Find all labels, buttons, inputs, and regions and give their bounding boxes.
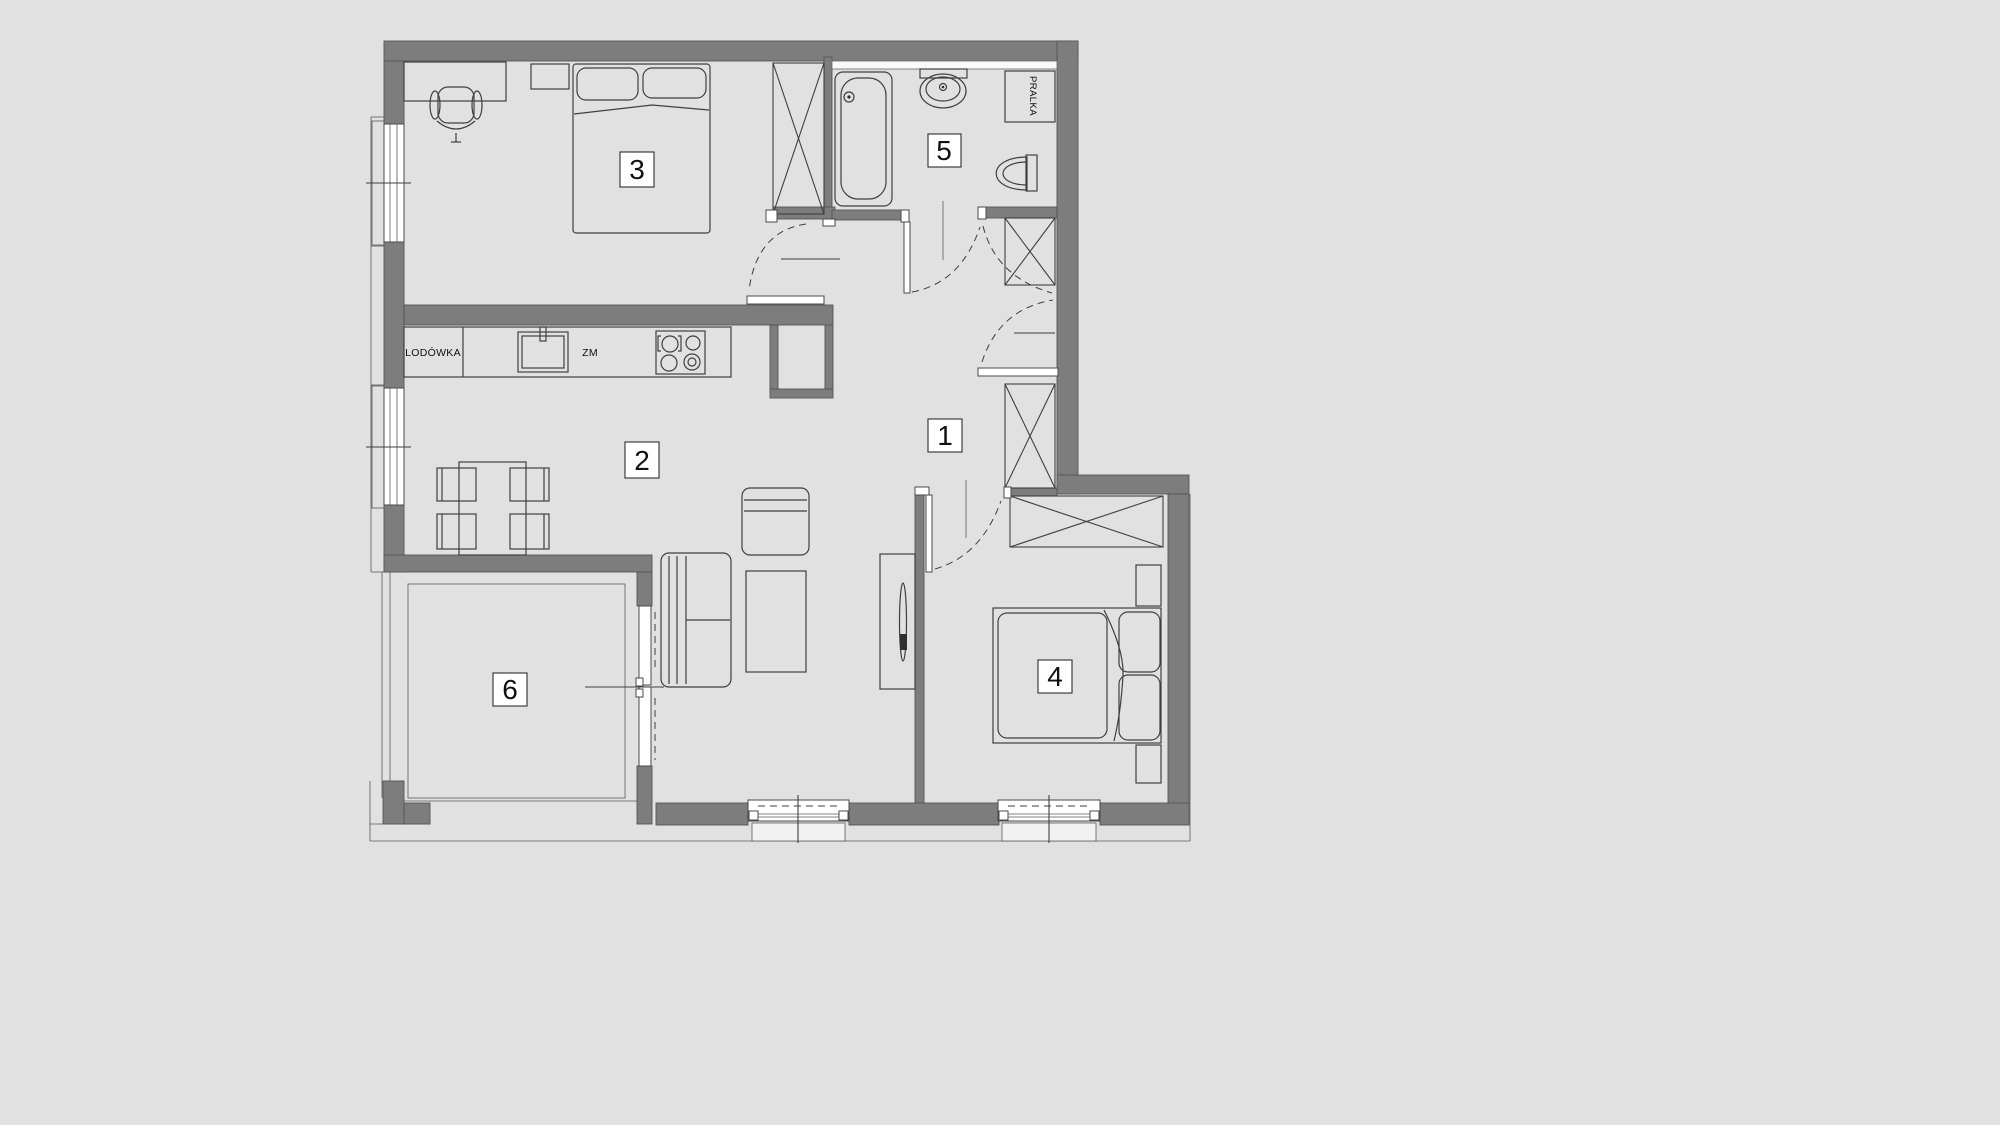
wall-room4-top (1057, 475, 1189, 494)
bathroom-top-strip (832, 61, 1057, 69)
wall-bottom-3 (1100, 803, 1189, 825)
bed-room3 (573, 64, 710, 233)
closet-hall-upper (1005, 218, 1055, 285)
floorplan-drawing: LODÓWKA ZM (0, 0, 2000, 1125)
window-left-upper (366, 121, 411, 245)
dining-set (437, 462, 549, 555)
wall-bottom-1 (656, 803, 748, 825)
wall-bath-bottom-right (980, 207, 1057, 218)
room-number: 6 (502, 674, 518, 705)
wall-closet-bottom (1004, 488, 1057, 496)
coffee-table (746, 571, 806, 672)
door-loggia (585, 606, 664, 766)
balcony-door-room4 (998, 795, 1100, 843)
bathroom-sink (920, 69, 967, 108)
room-label-1: 1 (928, 419, 962, 452)
wardrobe-room4 (1010, 496, 1163, 547)
sink-label: ZM (582, 347, 598, 359)
room-number: 2 (634, 445, 650, 476)
bed-room4 (993, 608, 1161, 743)
desk-room3 (404, 62, 506, 101)
room-number: 1 (937, 420, 953, 451)
door-room3 (749, 210, 840, 290)
wall-bath-left (824, 57, 832, 219)
washing-machine: PRALKA (1005, 71, 1055, 122)
armchair (742, 488, 809, 555)
wall-bottom-2 (849, 803, 999, 825)
room-label-5: 5 (928, 134, 961, 167)
floorplan-canvas: LODÓWKA ZM (0, 0, 2000, 1125)
window-left-lower (366, 385, 411, 508)
bathtub (835, 72, 892, 206)
room-number: 4 (1047, 661, 1063, 692)
wall-room6-right-lower (637, 766, 652, 824)
shaft-right (825, 325, 833, 389)
walls (383, 41, 1189, 825)
wall-bath-bottom-left (832, 210, 906, 220)
room-label-4: 4 (1038, 660, 1072, 693)
opening-hall-living (747, 296, 824, 304)
toilet (996, 155, 1037, 191)
wall-block-bl-1 (383, 781, 404, 824)
wardrobe-room3 (773, 63, 824, 214)
stove (656, 331, 705, 374)
tv-cabinet (880, 554, 915, 689)
wall-left-upper (384, 61, 404, 124)
wall-stub-room3 (773, 207, 835, 219)
wall-right-inner (1057, 41, 1078, 494)
nightstand-room4-top (1136, 565, 1161, 606)
wall-top (384, 41, 1078, 61)
room-number: 5 (936, 135, 952, 166)
kitchen-sink (518, 327, 568, 372)
door-room4 (915, 480, 1011, 572)
room-label-6: 6 (493, 673, 527, 706)
tv-icon (900, 634, 907, 650)
wall-room6-top (384, 555, 652, 572)
washer-label: PRALKA (1027, 76, 1038, 116)
wall-right-outer (1168, 494, 1189, 824)
shaft-left (770, 325, 778, 389)
room-number: 3 (629, 154, 645, 185)
wall-room6-right-upper (637, 572, 652, 606)
nightstand-room4-bottom (1136, 745, 1161, 783)
wall-living-room4 (915, 487, 924, 803)
room-label-3: 3 (620, 152, 654, 187)
nightstand-room3 (531, 64, 569, 89)
fridge-label: LODÓWKA (405, 346, 461, 359)
office-chair (430, 87, 482, 142)
sofa (661, 553, 731, 687)
wall-left-mid (384, 242, 404, 388)
door-hall-closet (978, 300, 1058, 376)
balcony-door-living (748, 795, 849, 843)
door-bathroom (901, 201, 980, 293)
wall-block-bl-2 (404, 803, 430, 824)
wall-kitchen (404, 305, 833, 325)
closet-hall-lower (1005, 384, 1055, 488)
shaft-bottom (770, 389, 833, 398)
dining-table (459, 462, 526, 555)
door-closet-upper (978, 207, 1052, 293)
room-label-2: 2 (625, 442, 659, 478)
